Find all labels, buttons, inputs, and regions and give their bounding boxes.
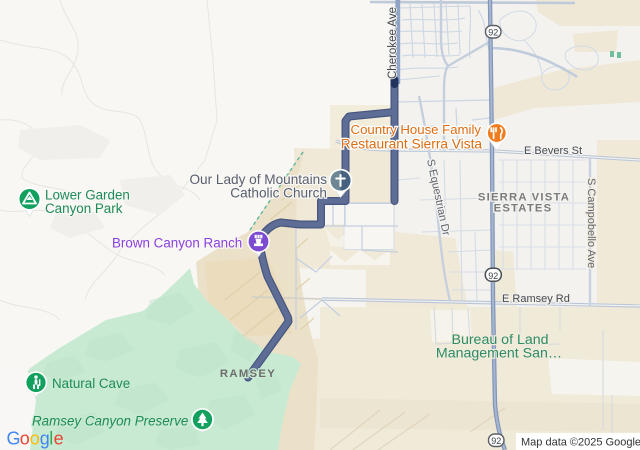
svg-text:S Campobello Ave: S Campobello Ave xyxy=(585,178,597,268)
svg-text:Brown Canyon Ranch: Brown Canyon Ranch xyxy=(112,236,242,251)
svg-text:Cherokee Ave: Cherokee Ave xyxy=(387,7,399,79)
svg-text:Country House Family: Country House Family xyxy=(351,122,482,137)
svg-text:Management San…: Management San… xyxy=(436,346,562,362)
svg-text:ESTATES: ESTATES xyxy=(494,203,553,215)
svg-text:92: 92 xyxy=(491,436,501,446)
svg-text:o: o xyxy=(30,429,40,449)
svg-text:o: o xyxy=(20,429,30,449)
svg-text:Ramsey Canyon Preserve: Ramsey Canyon Preserve xyxy=(32,414,188,429)
svg-text:Map data ©2025 Google: Map data ©2025 Google xyxy=(521,437,640,449)
svg-text:E Ramsey Rd: E Ramsey Rd xyxy=(502,293,570,305)
svg-text:Catholic Church: Catholic Church xyxy=(230,186,327,201)
svg-text:Restaurant Sierra Vista: Restaurant Sierra Vista xyxy=(341,137,483,152)
svg-text:92: 92 xyxy=(488,28,498,38)
svg-text:G: G xyxy=(7,429,21,449)
svg-text:Canyon Park: Canyon Park xyxy=(45,201,123,216)
svg-text:Natural Cave: Natural Cave xyxy=(52,376,130,391)
svg-text:e: e xyxy=(54,429,64,449)
svg-text:92: 92 xyxy=(488,271,498,281)
svg-text:E Bevers St: E Bevers St xyxy=(524,145,582,157)
svg-text:RAMSEY: RAMSEY xyxy=(220,368,276,380)
